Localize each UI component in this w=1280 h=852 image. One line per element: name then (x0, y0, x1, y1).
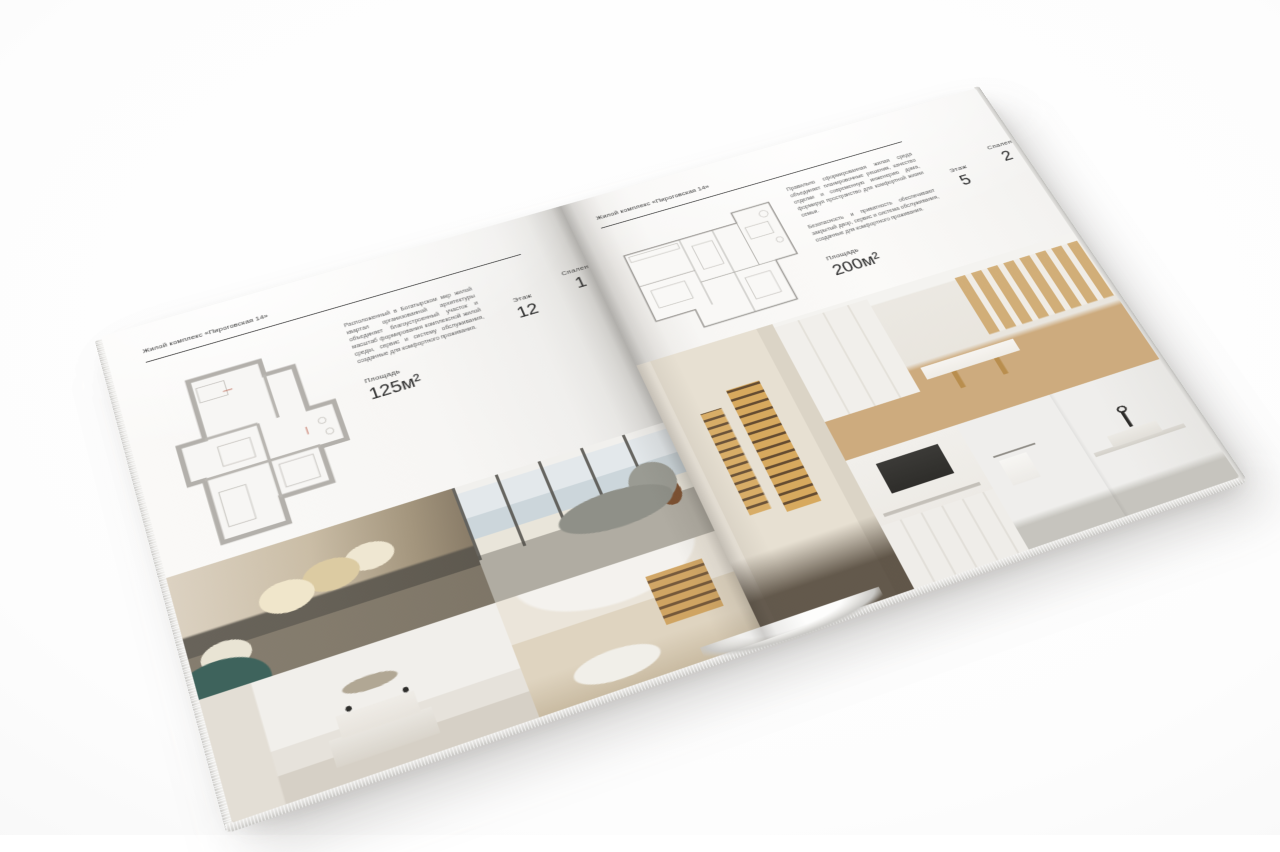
magazine-spread: Жилой комплекс «Пироговская 14» (101, 88, 1240, 822)
right-floor-value: 5 (953, 171, 979, 190)
spread-pages: Жилой комплекс «Пироговская 14» (101, 88, 1240, 822)
photo-backdrop: Жилой комплекс «Пироговская 14» (0, 0, 1280, 835)
left-description-column: Расположенный в Богатырском мкр жилой кв… (343, 286, 541, 496)
left-floor-value: 12 (514, 300, 541, 322)
